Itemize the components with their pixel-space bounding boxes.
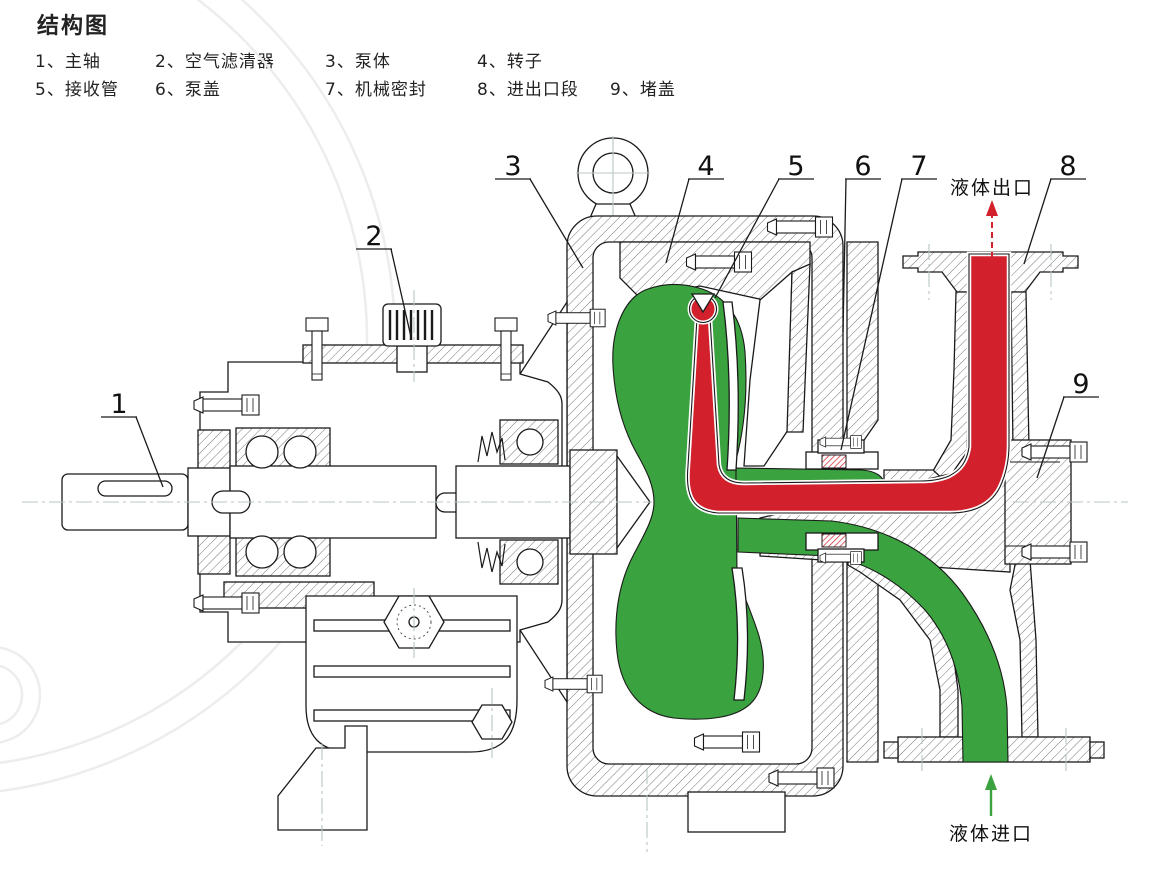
callout-5: 5: [787, 151, 804, 182]
callout-9: 9: [1072, 369, 1089, 400]
callout-8: 8: [1059, 151, 1076, 182]
outlet-flow-annotation: 液体出口: [950, 177, 1034, 258]
casing-foot-block: [688, 792, 785, 832]
callout-4: 4: [697, 151, 714, 182]
inlet-flow-annotation: 液体进口: [949, 774, 1033, 845]
callout-7: 7: [910, 151, 927, 182]
inlet-arrow-icon: [985, 774, 997, 790]
callout-2: 2: [365, 221, 382, 252]
oil-sump: [278, 596, 517, 830]
outlet-arrow-icon: [986, 200, 998, 216]
pump-cross-section-drawing: 1 2 3 4 5 6 7 8 9 液体出口 液体进口: [0, 0, 1158, 875]
callout-6: 6: [854, 151, 871, 182]
callout-1: 1: [110, 389, 127, 420]
callout-3: 3: [504, 151, 521, 182]
lifting-eye: [576, 136, 650, 222]
structure-diagram-page: 结构图 1、主轴 2、空气滤清器 3、泵体 4、转子 5、接收管 6、泵盖 7、…: [0, 0, 1158, 875]
outlet-label: 液体出口: [950, 177, 1034, 199]
inlet-label: 液体进口: [949, 823, 1033, 845]
